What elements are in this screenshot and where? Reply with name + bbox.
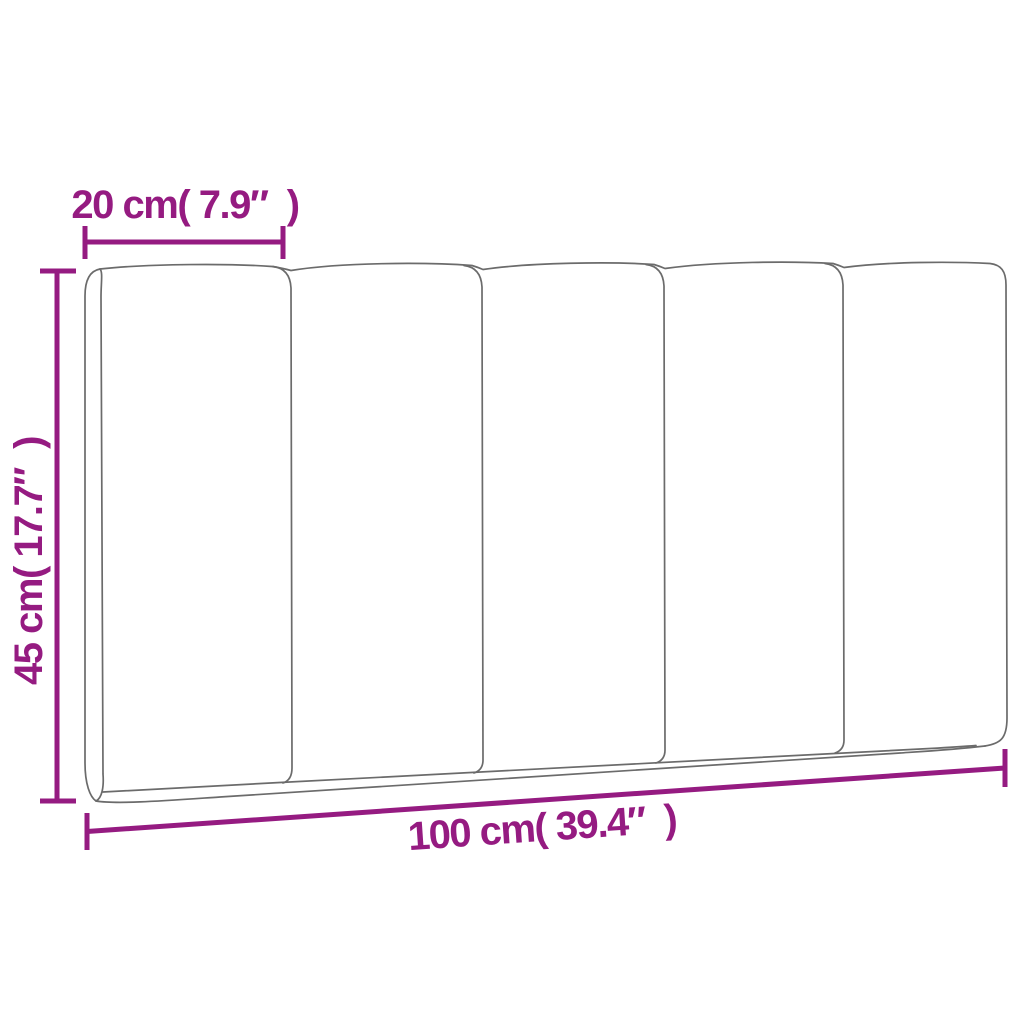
headboard-bottom-crease (103, 746, 976, 793)
panel-separator-1 (273, 267, 292, 784)
panel-separator-2 (464, 266, 483, 774)
panel-width-label: 20 cm( 7.9″ ) (71, 185, 298, 225)
panel-separator-4 (825, 264, 844, 754)
headboard-bottom-edge (96, 746, 985, 802)
panel-separator-3 (646, 265, 665, 764)
dimension-diagram: 20 cm( 7.9″ ) 45 cm( 17.7″ ) 100 cm( 39.… (0, 0, 1024, 1024)
headboard-outline (100, 262, 1007, 746)
headboard-line-drawing (0, 0, 1024, 1024)
dimension-line-panel-width (85, 226, 283, 259)
height-label: 45 cm( 17.7″ ) (9, 437, 49, 685)
headboard-left-edge (85, 269, 103, 801)
